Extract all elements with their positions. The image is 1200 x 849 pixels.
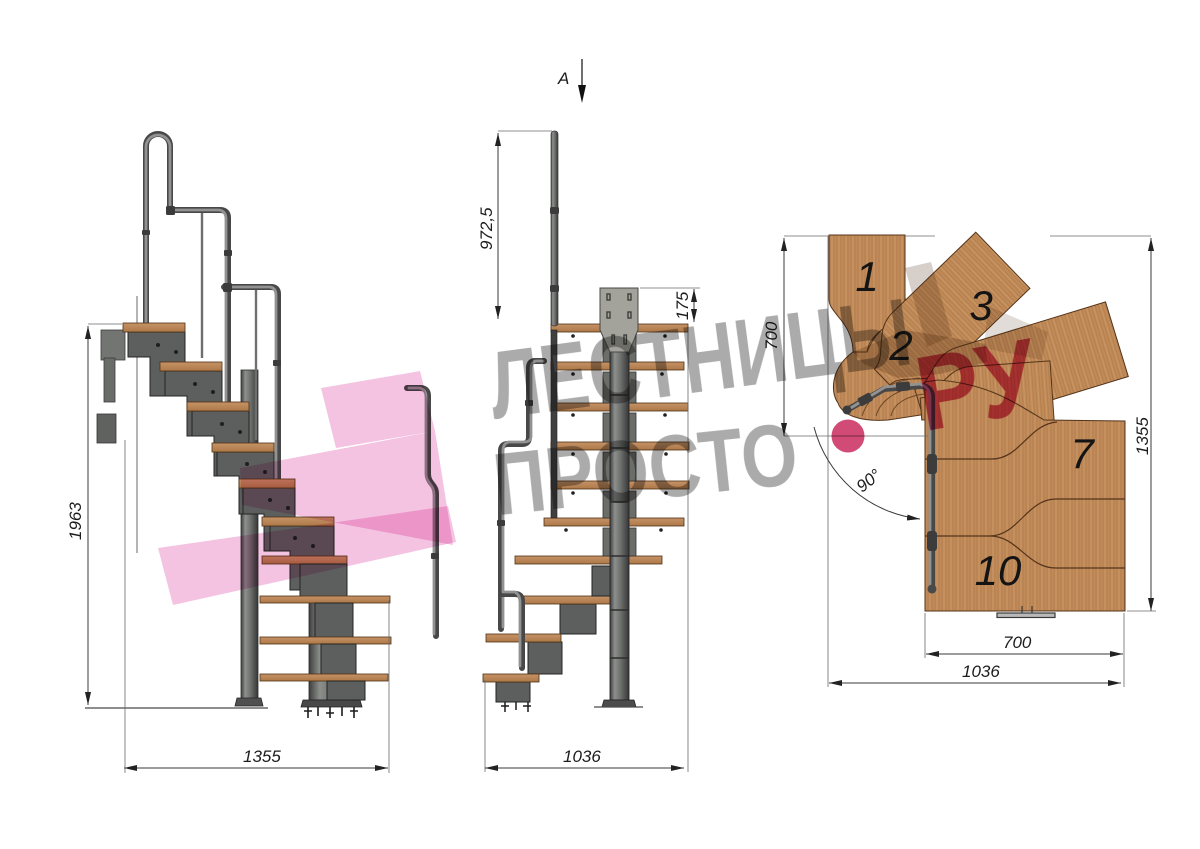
svg-text:1036: 1036 — [962, 662, 1000, 681]
svg-text:1963: 1963 — [66, 502, 85, 540]
svg-text:7: 7 — [1070, 430, 1095, 477]
svg-text:972,5: 972,5 — [477, 207, 496, 250]
svg-text:1036: 1036 — [563, 747, 601, 766]
svg-text:A: A — [557, 69, 569, 88]
svg-text:700: 700 — [1003, 633, 1032, 652]
svg-text:10: 10 — [975, 547, 1022, 594]
svg-text:1355: 1355 — [243, 747, 281, 766]
svg-text:РУ: РУ — [908, 316, 1048, 453]
svg-text:1355: 1355 — [1133, 417, 1152, 455]
svg-text:3: 3 — [969, 282, 992, 329]
